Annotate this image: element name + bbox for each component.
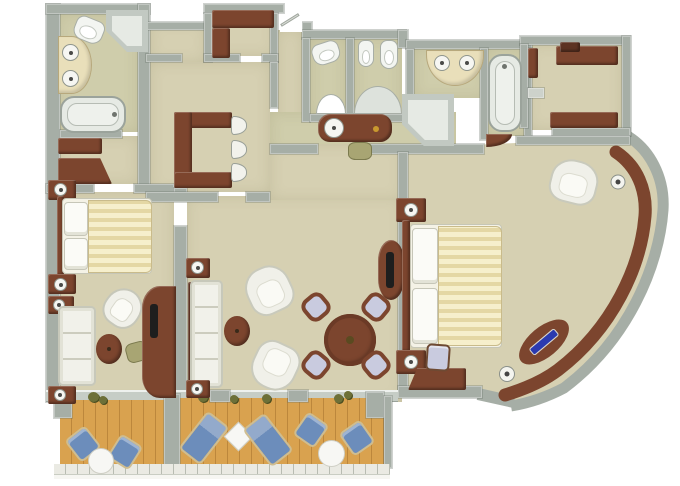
wall-hall-south-b <box>246 192 270 202</box>
table-centerpiece <box>346 336 354 344</box>
balcony-railing-cap <box>54 474 390 479</box>
plant <box>230 395 238 403</box>
wall-vestibule-top <box>146 22 206 30</box>
closet-counter-step <box>560 42 580 52</box>
wall-closet-south <box>552 128 630 136</box>
wall-vestibule-divider <box>146 54 182 62</box>
balcony-wall-stub-3 <box>288 390 308 402</box>
bedside-lamp <box>404 355 418 369</box>
sink-basin <box>434 55 450 71</box>
wall-living-north-a <box>270 144 318 154</box>
entry-closet-side <box>212 28 230 58</box>
wall-bedroom2-top-east <box>516 136 630 145</box>
tv-desk-cabinet <box>142 286 176 398</box>
balcony-wall-stub-4 <box>366 392 384 418</box>
striped-duvet <box>438 226 502 346</box>
wall-closet-east <box>622 36 631 136</box>
desk-chair <box>425 343 451 372</box>
table-lamp <box>191 383 203 395</box>
balcony-wall-stub-2 <box>210 390 230 402</box>
plant <box>88 392 99 402</box>
wall-wc-divider <box>346 38 354 122</box>
wall-entry-closet-south-b <box>262 54 278 62</box>
bidet <box>358 40 374 67</box>
bedside-lamp <box>54 278 67 291</box>
balcony-divider <box>164 394 180 474</box>
desk <box>408 368 466 390</box>
wall-wc-a-west <box>302 38 310 122</box>
stool <box>348 142 372 160</box>
table-lamp <box>54 389 66 401</box>
plant <box>262 394 271 403</box>
console-lamp-center <box>505 372 510 377</box>
closet-bench <box>550 112 618 128</box>
pillow <box>412 288 438 344</box>
closet-side-cabinet <box>528 48 538 78</box>
console-lamp-center <box>616 180 621 185</box>
tub-faucet <box>112 112 117 117</box>
wall-hall-south-a <box>146 192 218 202</box>
floor-plan <box>0 0 680 486</box>
plant <box>334 394 343 403</box>
wall-corridor-west <box>270 62 278 108</box>
table-decor <box>235 329 239 333</box>
bedside-lamp <box>54 183 67 196</box>
toilet <box>380 40 398 69</box>
round-table <box>88 448 114 474</box>
table-lamp <box>191 261 204 274</box>
wall-living-north-b <box>354 144 484 154</box>
sink-basin <box>62 70 79 87</box>
pillow <box>64 202 88 236</box>
bar-counter-bottom <box>174 172 232 188</box>
closet-shelf <box>528 88 544 98</box>
headboard <box>402 220 410 352</box>
tub-faucet <box>502 64 507 69</box>
tv-screen <box>386 252 394 288</box>
pillow <box>412 228 438 284</box>
round-table <box>318 440 345 467</box>
plant <box>344 391 352 399</box>
balcony-wall-right <box>384 396 392 468</box>
plant <box>99 396 107 404</box>
tv-screen <box>150 304 158 338</box>
console-basin <box>324 118 344 138</box>
pillow <box>64 238 88 270</box>
entry-closet-counter <box>212 10 274 28</box>
sofa <box>190 280 223 388</box>
wardrobe <box>58 138 102 154</box>
sink-basin <box>459 55 475 71</box>
wall-guest-bath-top <box>302 30 406 39</box>
bedside-lamp <box>404 203 418 217</box>
brass-knob <box>373 126 379 132</box>
striped-duvet <box>88 200 152 273</box>
sofa <box>58 306 96 386</box>
wall-vanity-room-top <box>406 40 532 49</box>
sink-basin <box>62 44 79 61</box>
table-decor <box>107 347 111 351</box>
